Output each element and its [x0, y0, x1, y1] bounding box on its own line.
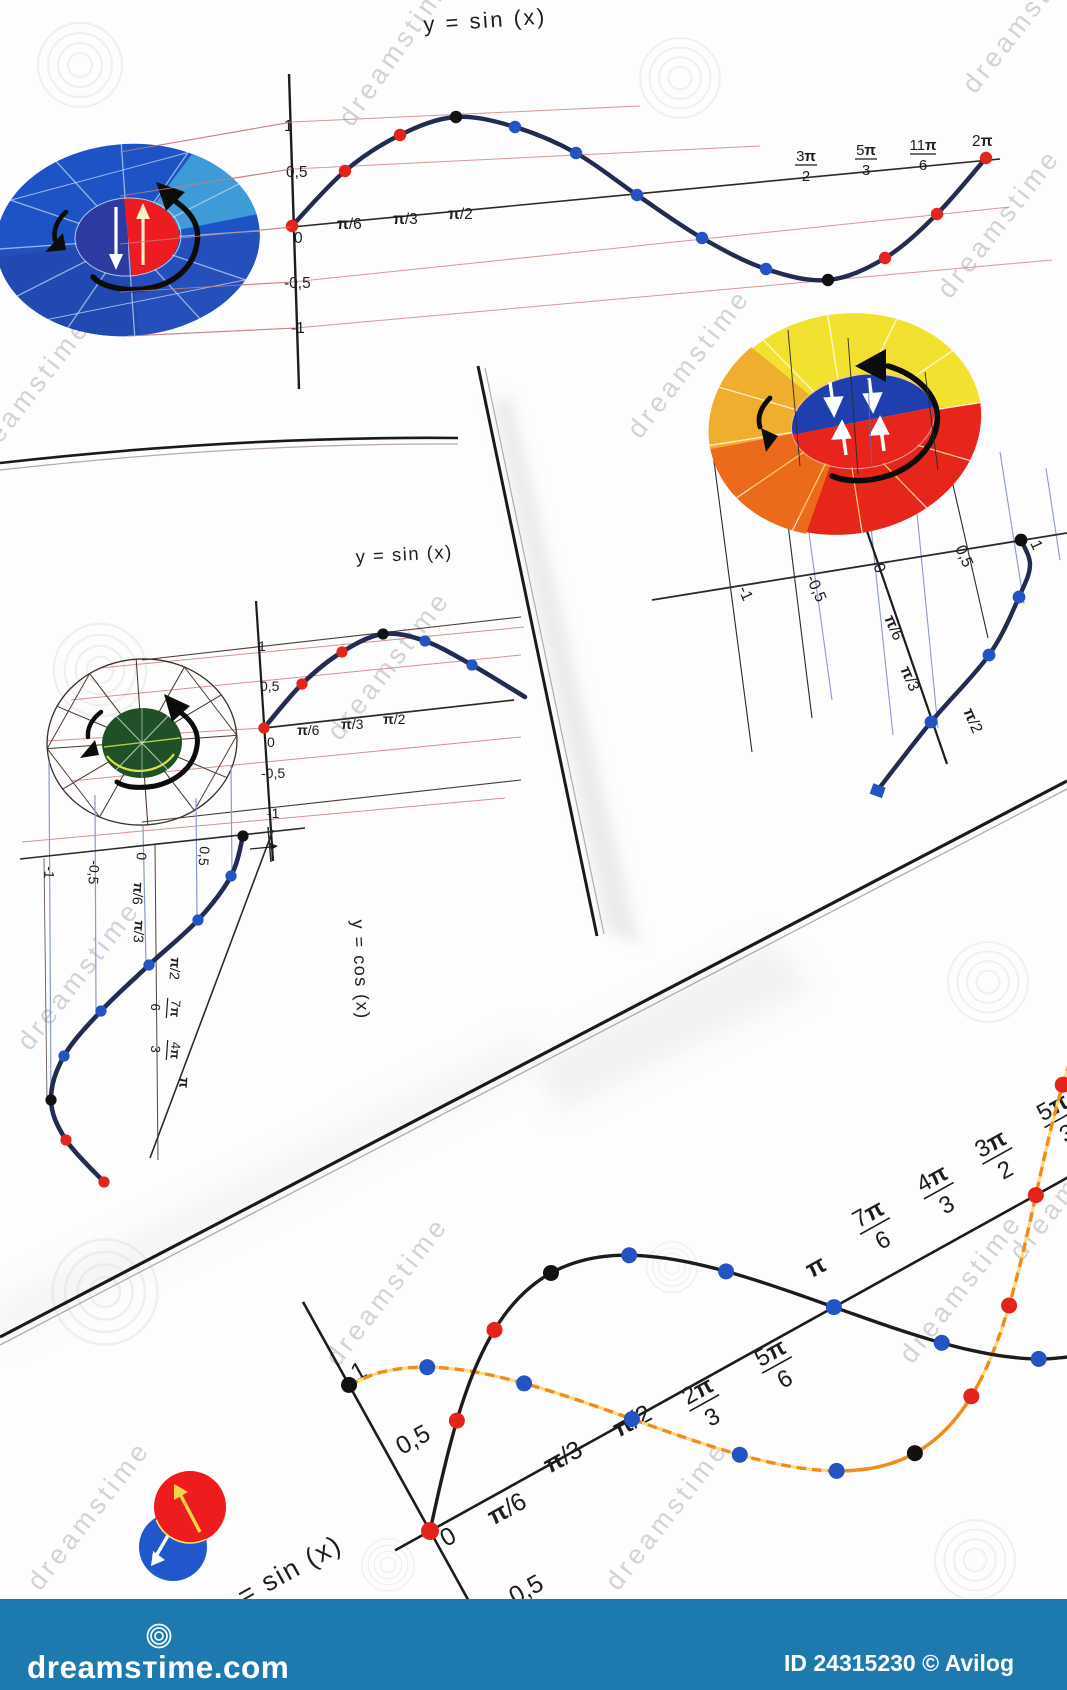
svg-text:π/6: π/6 — [337, 216, 362, 233]
svg-text:0: 0 — [133, 852, 150, 861]
svg-text:0,5: 0,5 — [260, 678, 280, 694]
svg-text:0,5: 0,5 — [286, 164, 308, 181]
svg-text:7π: 7π — [167, 999, 183, 1017]
svg-text:dreamsтime.com: dreamsтime.com — [27, 1649, 289, 1685]
svg-text:ID 24315230 © Avilog: ID 24315230 © Avilog — [784, 1650, 1014, 1676]
svg-text:π/6: π/6 — [129, 882, 147, 906]
svg-text:π/3: π/3 — [341, 716, 364, 732]
svg-text:6: 6 — [919, 157, 927, 174]
svg-text:-1: -1 — [267, 805, 280, 821]
svg-text:3: 3 — [148, 1045, 163, 1053]
svg-text:4π: 4π — [167, 1041, 183, 1059]
svg-text:3: 3 — [862, 162, 870, 179]
svg-text:2π: 2π — [972, 133, 993, 150]
svg-text:π: π — [176, 1077, 193, 1089]
svg-text:-0,5: -0,5 — [85, 860, 103, 885]
svg-text:-0,5: -0,5 — [284, 275, 311, 292]
svg-text:-0,5: -0,5 — [261, 765, 285, 781]
svg-text:1: 1 — [258, 638, 266, 654]
svg-text:2: 2 — [802, 168, 810, 185]
svg-text:0: 0 — [294, 230, 303, 247]
svg-text:π/2: π/2 — [166, 957, 184, 981]
svg-text:π/2: π/2 — [383, 711, 406, 727]
svg-text:0,5: 0,5 — [196, 846, 213, 867]
svg-text:π/6: π/6 — [297, 722, 320, 738]
svg-text:0: 0 — [267, 734, 275, 750]
svg-text:π/3: π/3 — [393, 211, 418, 228]
svg-text:5π: 5π — [856, 142, 876, 159]
svg-text:-1: -1 — [41, 866, 58, 880]
svg-text:π/2: π/2 — [448, 206, 473, 223]
svg-text:1: 1 — [284, 118, 293, 135]
svg-text:π/3: π/3 — [130, 920, 148, 944]
svg-text:11π: 11π — [909, 137, 937, 154]
svg-text:3π: 3π — [796, 148, 816, 165]
svg-text:6: 6 — [148, 1003, 163, 1011]
